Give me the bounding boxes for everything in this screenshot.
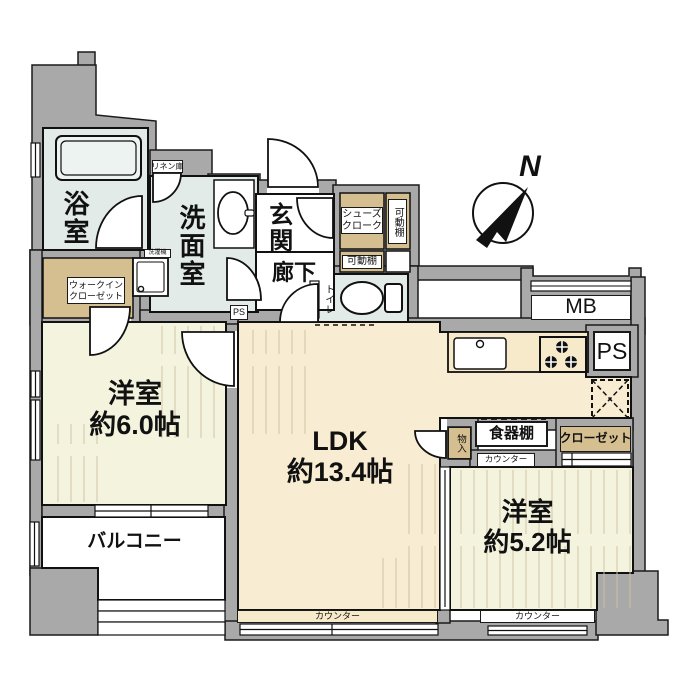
mb-label: MB bbox=[531, 295, 631, 320]
washroom-label: 洗面室 bbox=[172, 192, 208, 300]
western6-label: 洋室 約6.0帖 bbox=[60, 378, 210, 442]
movable-shelf-bottom-label: 可動棚 bbox=[342, 255, 382, 269]
balcony-label: バルコニー bbox=[72, 530, 197, 554]
laundry-label: 洗濯機 bbox=[144, 249, 171, 258]
counter-ldk-label: カウンター bbox=[237, 610, 438, 623]
shoe-cloak-line2: クローク bbox=[342, 221, 382, 233]
shoe-cloak-line1: シューズ bbox=[342, 209, 382, 221]
shoe-cloak-label: シューズ クローク bbox=[341, 207, 383, 234]
wall-bottom-left-block bbox=[30, 568, 98, 635]
wall-outer-band bbox=[408, 266, 533, 280]
sink-faucet bbox=[477, 341, 484, 348]
movable-shelf-right-label: 可動棚 bbox=[388, 199, 407, 244]
shelf-side-white-box bbox=[386, 251, 410, 272]
cupboard-label: 食器棚 bbox=[475, 421, 548, 447]
western6-size: 約6.0帖 bbox=[89, 410, 181, 441]
entrance-door bbox=[268, 139, 318, 187]
balcony-louver bbox=[98, 600, 225, 635]
wall-notch bbox=[78, 52, 95, 66]
basin-faucet bbox=[245, 210, 254, 216]
closet-label: クローゼット bbox=[560, 426, 631, 452]
ldk-name: LDK bbox=[312, 426, 368, 457]
compass-north-label: N bbox=[512, 150, 548, 184]
western52-label: 洋室 約5.2帖 bbox=[440, 497, 615, 559]
wash-basin bbox=[218, 192, 248, 234]
washing-machine-drain bbox=[138, 286, 143, 291]
grain-ldk-nw bbox=[246, 330, 308, 434]
ldk-size: 約13.4帖 bbox=[287, 457, 394, 488]
grain-ldk-s bbox=[380, 558, 438, 608]
western52-name: 洋室 bbox=[501, 498, 553, 528]
linen-label: リネン庫 bbox=[152, 160, 183, 173]
bath-label: 浴室 bbox=[56, 180, 92, 256]
walk-in-closet-label: ウォークイン クローゼット bbox=[67, 277, 125, 304]
ps-small-label: PS bbox=[230, 305, 248, 320]
compass bbox=[473, 183, 533, 248]
toilet-bowl bbox=[341, 282, 383, 314]
counter-west52-top-label: カウンター bbox=[477, 453, 535, 467]
ldk-label: LDK 約13.4帖 bbox=[270, 424, 410, 490]
counter-west52-bottom-label: カウンター bbox=[480, 610, 595, 623]
wic-line2: クローゼット bbox=[69, 291, 123, 301]
entrance-label: 玄関 bbox=[262, 202, 294, 254]
western6-name: 洋室 bbox=[108, 379, 162, 410]
toilet-tank bbox=[385, 284, 402, 312]
floor-plan: 浴室 リネン庫 洗面室 洗濯機 ウォークイン クローゼット 玄関 シューズ クロ… bbox=[0, 0, 700, 700]
wic-line1: ウォークイン bbox=[69, 280, 123, 290]
monoire-label: 物入 bbox=[448, 427, 471, 459]
toilet-label: トイレ bbox=[321, 278, 335, 320]
corridor-label: 廊下 bbox=[262, 260, 326, 286]
ps-label: PS bbox=[593, 331, 631, 371]
western52-size: 約5.2帖 bbox=[483, 528, 571, 558]
bathtub bbox=[56, 136, 141, 180]
